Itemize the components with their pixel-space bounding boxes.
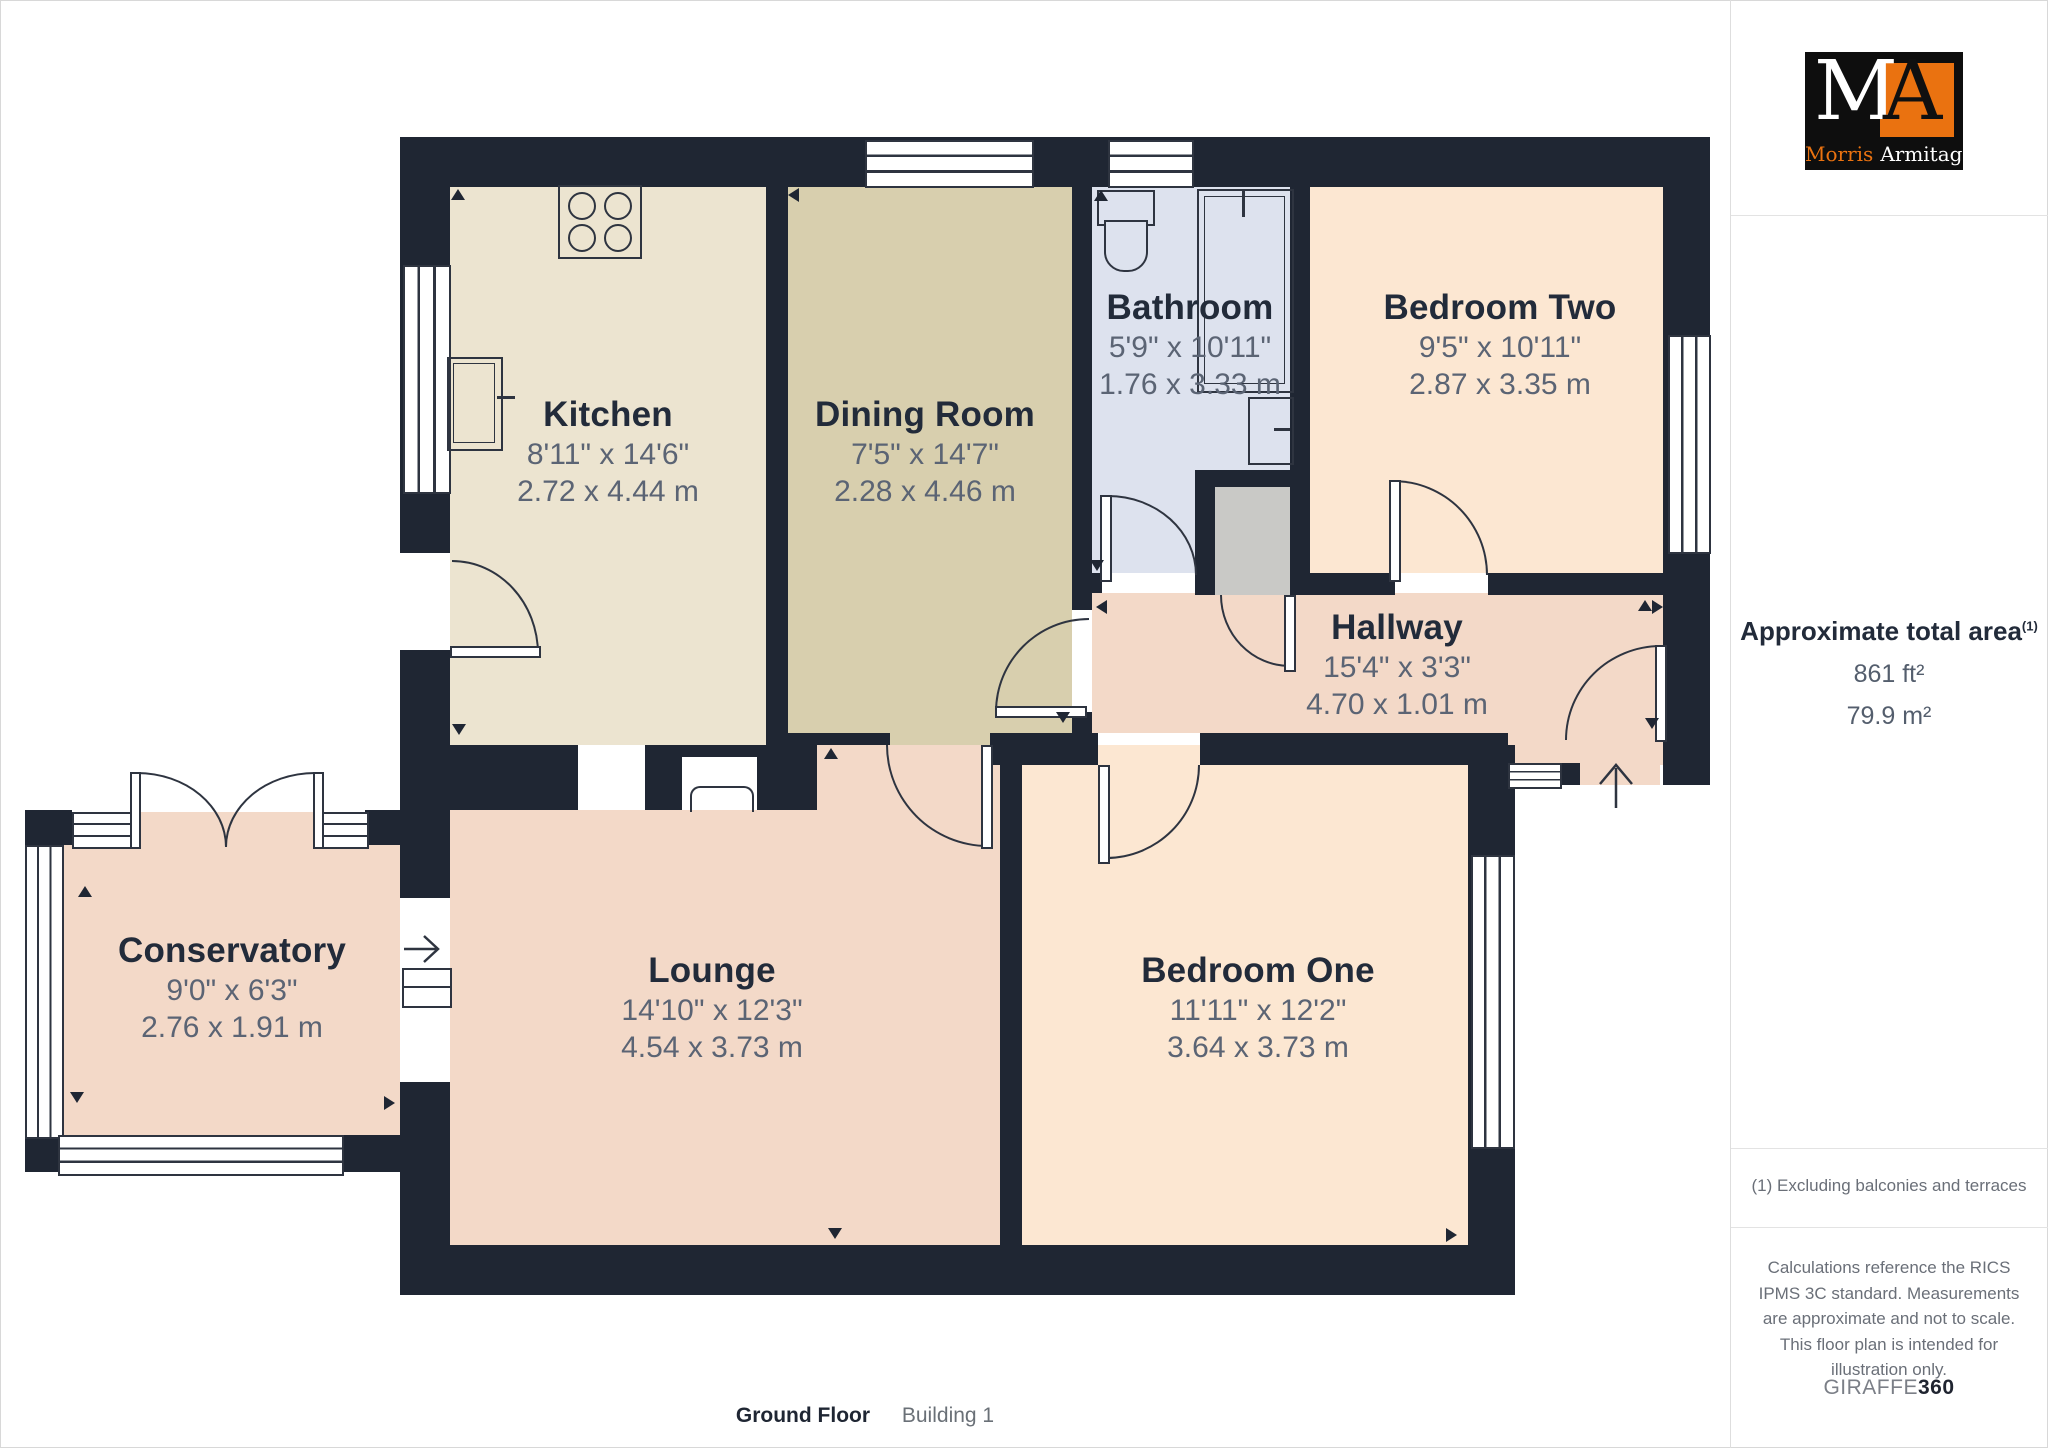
kitchen-door-leaf: [450, 646, 541, 658]
kitchen-lounge-opening: [578, 745, 645, 810]
basin-tap-icon: [1274, 428, 1290, 431]
room-dim-imperial: 15'4" x 3'3": [1306, 651, 1488, 685]
conservatory-window-top-right: [320, 812, 369, 849]
room-name: Hallway: [1306, 608, 1488, 648]
kitchen-window: [403, 265, 451, 494]
plan-footer: Ground Floor Building 1: [0, 1404, 1730, 1428]
cupboard-floor: [1215, 487, 1290, 595]
dimension-marker: [1446, 1228, 1457, 1242]
room-dim-metric: 4.54 x 3.73 m: [621, 1031, 803, 1065]
sidebar-rule-2: [1731, 1148, 2048, 1149]
total-area-ft: 861 ft²: [1730, 660, 2048, 689]
morris-armitage-logo: M A MorrisArmitage: [1805, 52, 1963, 170]
room-dim-metric: 2.87 x 3.35 m: [1384, 368, 1617, 402]
room-name: Bedroom One: [1141, 951, 1375, 991]
room-label-bedroom-one: Bedroom One 11'11" x 12'2" 3.64 x 3.73 m: [1141, 951, 1375, 1065]
room-name: Conservatory: [118, 931, 346, 971]
bedroom-one-window: [1471, 855, 1515, 1149]
french-door-left-leaf: [130, 772, 141, 849]
wall-conservatory-corner-tr: [365, 810, 400, 845]
dimension-marker: [1056, 712, 1070, 723]
wall-lounge-bedroom-one: [1000, 745, 1022, 1245]
wall-conservatory-corner-tl: [25, 810, 72, 845]
building-label: Building 1: [902, 1404, 994, 1427]
hob-ring-icon: [568, 192, 596, 220]
step-icon: [402, 986, 452, 1008]
room-dim-imperial: 8'11" x 14'6": [517, 438, 699, 472]
bedroom-two-door-leaf: [1389, 480, 1401, 582]
total-area-m: 79.9 m²: [1730, 702, 2048, 731]
total-area-footnote-ref: (1): [2022, 618, 2038, 633]
wall-dining-right: [1072, 187, 1092, 610]
dimension-marker: [78, 886, 92, 897]
hob-ring-icon: [568, 224, 596, 252]
room-dim-imperial: 14'10" x 12'3": [621, 994, 803, 1028]
sidebar-rule-1: [1731, 215, 2048, 216]
dimension-marker: [824, 748, 838, 759]
lounge-door-leaf: [981, 745, 993, 849]
kitchen-door-gap: [400, 553, 450, 650]
disclaimer-text: Calculations reference the RICS IPMS 3C …: [1754, 1255, 2024, 1383]
logo-name-first: Morris: [1805, 142, 1873, 166]
dining-door-leaf: [995, 706, 1087, 718]
wall-hallway-bottom-a: [990, 733, 1098, 765]
footnote-text: (1) Excluding balconies and terraces: [1736, 1176, 2042, 1196]
wall-conservatory-corner-bl: [25, 1135, 60, 1172]
room-dim-imperial: 11'11" x 12'2": [1141, 994, 1375, 1028]
bath-tap-icon: [1242, 189, 1245, 217]
conservatory-window-left: [25, 845, 64, 1139]
dimension-marker: [384, 1096, 395, 1110]
wall-hallway-top-b: [1488, 573, 1663, 595]
sink-basin-icon: [453, 363, 495, 443]
hob-ring-icon: [604, 224, 632, 252]
room-dim-metric: 4.70 x 1.01 m: [1306, 688, 1488, 722]
total-area-title-text: Approximate total area: [1740, 616, 2022, 646]
room-label-bathroom: Bathroom 5'9" x 10'11" 1.76 x 3.33 m: [1099, 288, 1281, 402]
wall-conservatory-corner-br: [340, 1135, 400, 1172]
wall-hallway-bottom-b: [1200, 733, 1480, 765]
room-dim-imperial: 5'9" x 10'11": [1099, 331, 1281, 365]
conservatory-window-top-left: [72, 812, 134, 849]
step-arrow-icon: [402, 932, 446, 966]
room-label-kitchen: Kitchen 8'11" x 14'6" 2.72 x 4.44 m: [517, 395, 699, 509]
room-label-hallway: Hallway 15'4" x 3'3" 4.70 x 1.01 m: [1306, 608, 1488, 722]
logo-wordmark: MorrisArmitage: [1805, 142, 1963, 166]
dimension-marker: [1652, 600, 1663, 614]
dining-window: [865, 140, 1034, 188]
room-dim-imperial: 9'0" x 6'3": [118, 974, 346, 1008]
hob-icon: [558, 185, 642, 259]
giraffe-360-text: 360: [1918, 1376, 1955, 1399]
wall-bottom: [400, 1245, 1515, 1295]
dimension-marker: [1090, 560, 1104, 571]
sidebar-rule-3: [1731, 1227, 2048, 1228]
giraffe-text: GIRAFFE: [1823, 1376, 1918, 1399]
bedroom-one-door-leaf: [1098, 765, 1110, 864]
total-area-block: Approximate total area(1) 861 ft² 79.9 m…: [1730, 616, 2048, 731]
dimension-marker: [788, 188, 799, 202]
basin-icon: [1248, 397, 1294, 465]
logo-letter-a: A: [1883, 44, 1942, 139]
wall-hallway-top-a: [1310, 573, 1395, 595]
room-label-bedroom-two: Bedroom Two 9'5" x 10'11" 2.87 x 3.35 m: [1384, 288, 1617, 402]
floor-label: Ground Floor: [736, 1404, 870, 1427]
wall-kitchen-dining: [766, 187, 788, 745]
wall-dining-lounge: [788, 733, 890, 745]
room-name: Bedroom Two: [1384, 288, 1617, 328]
logo-name-last: Armitage: [1880, 142, 1974, 166]
french-door-left-arc: [137, 772, 227, 847]
conservatory-window-bottom: [58, 1135, 344, 1176]
bedroom-two-window: [1668, 335, 1711, 554]
room-dim-metric: 2.76 x 1.91 m: [118, 1011, 346, 1045]
toilet-bowl-icon: [1104, 220, 1148, 272]
room-label-dining-room: Dining Room 7'5" x 14'7" 2.28 x 4.46 m: [815, 395, 1035, 509]
hob-ring-icon: [604, 192, 632, 220]
wall-top: [400, 137, 1710, 187]
sink-icon: [447, 357, 503, 451]
sink-tap-icon: [497, 396, 515, 399]
dimension-marker: [451, 189, 465, 200]
total-area-title: Approximate total area(1): [1730, 616, 2048, 647]
room-name: Kitchen: [517, 395, 699, 435]
dimension-marker: [1096, 600, 1107, 614]
room-dim-imperial: 7'5" x 14'7": [815, 438, 1035, 472]
cupboard-door-leaf: [1284, 595, 1296, 672]
dimension-marker: [452, 724, 466, 735]
dimension-marker: [828, 1228, 842, 1239]
room-dim-metric: 2.72 x 4.44 m: [517, 475, 699, 509]
room-name: Lounge: [621, 951, 803, 991]
bathroom-window: [1108, 140, 1194, 188]
giraffe360-wordmark: GIRAFFE360: [1730, 1376, 2048, 1400]
entrance-window: [1508, 763, 1562, 789]
dimension-marker: [1094, 190, 1108, 201]
room-dim-metric: 1.76 x 3.33 m: [1099, 368, 1281, 402]
dimension-marker: [1638, 600, 1652, 611]
dimension-marker: [70, 1092, 84, 1103]
room-label-lounge: Lounge 14'10" x 12'3" 4.54 x 3.73 m: [621, 951, 803, 1065]
fireplace-hearth-icon: [690, 786, 754, 812]
room-dim-metric: 3.64 x 3.73 m: [1141, 1031, 1375, 1065]
room-label-conservatory: Conservatory 9'0" x 6'3" 2.76 x 1.91 m: [118, 931, 346, 1045]
french-door-right-arc: [225, 772, 315, 847]
room-dim-imperial: 9'5" x 10'11": [1384, 331, 1617, 365]
dimension-marker: [1645, 718, 1659, 729]
wall-cupboard-left: [1195, 470, 1215, 595]
floorplan-page: Kitchen 8'11" x 14'6" 2.72 x 4.44 m Dini…: [0, 0, 2048, 1448]
french-door-right-leaf: [313, 772, 324, 849]
room-dim-metric: 2.28 x 4.46 m: [815, 475, 1035, 509]
room-name: Bathroom: [1099, 288, 1281, 328]
room-name: Dining Room: [815, 395, 1035, 435]
entry-arrow-icon: [1592, 758, 1640, 810]
